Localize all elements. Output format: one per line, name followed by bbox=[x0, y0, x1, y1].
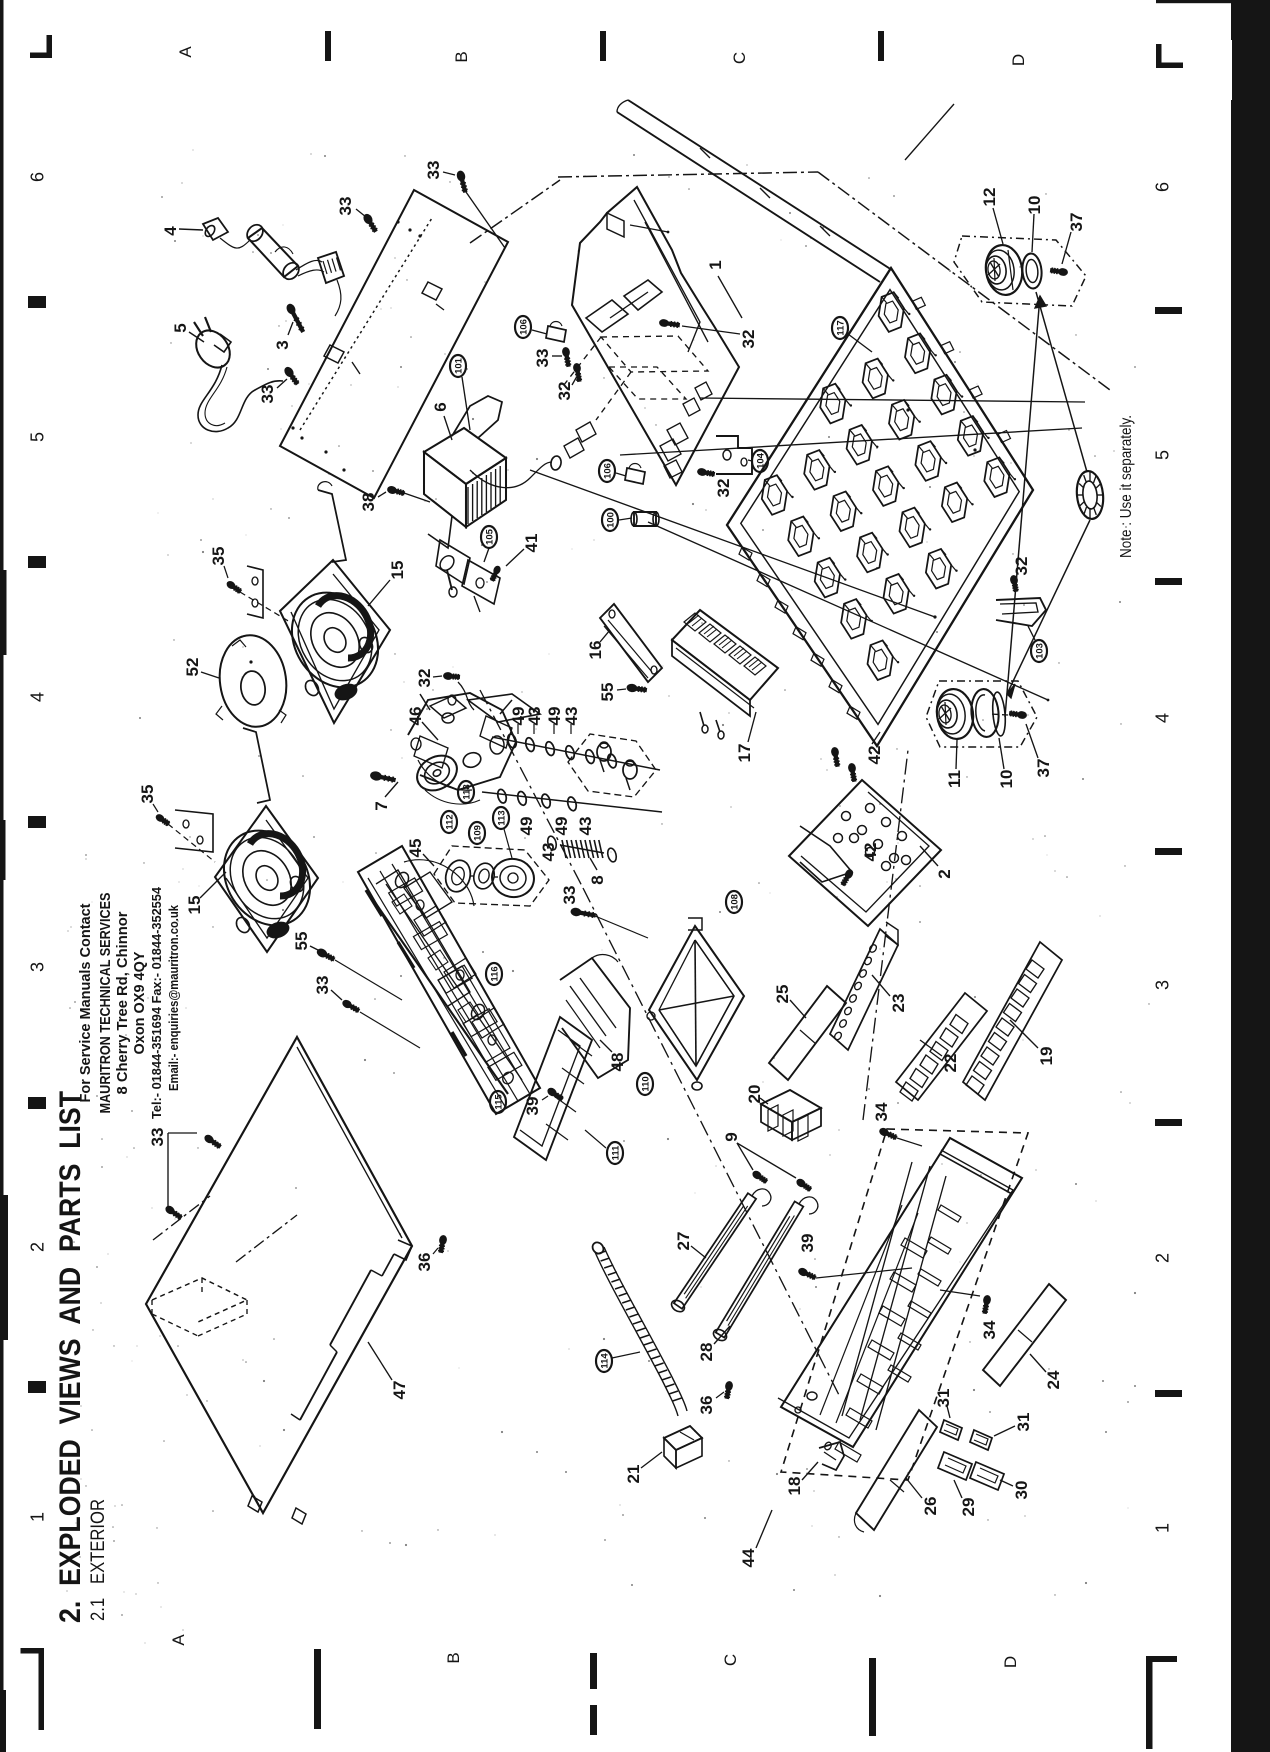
svg-text:33: 33 bbox=[148, 1128, 167, 1147]
svg-text:D: D bbox=[1009, 54, 1028, 66]
svg-text:16: 16 bbox=[586, 641, 605, 660]
svg-text:36: 36 bbox=[697, 1396, 716, 1415]
svg-text:45: 45 bbox=[406, 839, 425, 858]
svg-text:38: 38 bbox=[359, 493, 378, 512]
svg-text:100: 100 bbox=[606, 512, 617, 528]
svg-text:25: 25 bbox=[773, 985, 792, 1004]
svg-text:101: 101 bbox=[454, 357, 465, 374]
svg-text:106: 106 bbox=[603, 463, 614, 479]
svg-text:19: 19 bbox=[1037, 1047, 1056, 1066]
svg-text:55: 55 bbox=[292, 932, 311, 951]
svg-text:8: 8 bbox=[588, 875, 607, 884]
svg-text:33: 33 bbox=[424, 161, 443, 180]
svg-text:31: 31 bbox=[934, 1389, 953, 1408]
svg-text:32: 32 bbox=[714, 479, 733, 498]
svg-text:D: D bbox=[1001, 1656, 1020, 1668]
svg-text:3: 3 bbox=[28, 962, 48, 972]
svg-text:2: 2 bbox=[1153, 1253, 1173, 1263]
svg-text:30: 30 bbox=[1012, 1481, 1031, 1500]
svg-text:112: 112 bbox=[445, 814, 456, 829]
svg-text:117: 117 bbox=[836, 320, 847, 335]
svg-text:118: 118 bbox=[462, 784, 473, 799]
svg-text:36: 36 bbox=[415, 1253, 434, 1272]
svg-text:9: 9 bbox=[722, 1132, 741, 1141]
svg-text:23: 23 bbox=[889, 994, 908, 1013]
svg-text:111: 111 bbox=[611, 1145, 622, 1161]
svg-text:42: 42 bbox=[861, 843, 880, 862]
svg-text:103: 103 bbox=[1035, 643, 1046, 659]
svg-text:6: 6 bbox=[431, 402, 450, 411]
svg-text:4: 4 bbox=[28, 692, 48, 702]
svg-text:3: 3 bbox=[273, 340, 292, 349]
svg-text:32: 32 bbox=[555, 382, 574, 401]
svg-text:35: 35 bbox=[138, 785, 157, 804]
svg-text:6: 6 bbox=[28, 172, 48, 182]
svg-text:37: 37 bbox=[1067, 213, 1086, 232]
svg-text:1: 1 bbox=[706, 260, 725, 269]
svg-text:108: 108 bbox=[730, 894, 741, 910]
svg-text:47: 47 bbox=[390, 1381, 409, 1400]
svg-text:105: 105 bbox=[485, 528, 496, 545]
svg-text:31: 31 bbox=[1014, 1413, 1033, 1432]
svg-text:5: 5 bbox=[28, 432, 48, 442]
svg-text:33: 33 bbox=[560, 886, 579, 905]
svg-text:4: 4 bbox=[161, 226, 180, 236]
svg-text:32: 32 bbox=[1012, 557, 1031, 576]
svg-text:26: 26 bbox=[921, 1497, 940, 1516]
svg-text:43: 43 bbox=[576, 817, 595, 836]
svg-text:4: 4 bbox=[1153, 713, 1173, 723]
svg-text:33: 33 bbox=[313, 976, 332, 995]
svg-text:6: 6 bbox=[1153, 182, 1173, 192]
svg-text:114: 114 bbox=[600, 1353, 611, 1369]
svg-text:52: 52 bbox=[183, 658, 202, 677]
svg-text:1: 1 bbox=[28, 1512, 48, 1522]
svg-text:113: 113 bbox=[497, 810, 508, 825]
svg-text:35: 35 bbox=[209, 547, 228, 566]
svg-text:44: 44 bbox=[739, 1548, 758, 1567]
svg-text:C: C bbox=[721, 1654, 740, 1666]
svg-text:27: 27 bbox=[674, 1232, 693, 1251]
svg-text:109: 109 bbox=[473, 825, 484, 841]
svg-text:49: 49 bbox=[517, 817, 536, 836]
svg-text:33: 33 bbox=[533, 349, 552, 368]
svg-text:49: 49 bbox=[552, 817, 571, 836]
svg-text:48: 48 bbox=[608, 1053, 627, 1072]
svg-text:Note : Use it separately.: Note : Use it separately. bbox=[1118, 415, 1135, 558]
svg-text:28: 28 bbox=[697, 1343, 716, 1362]
svg-text:33: 33 bbox=[336, 197, 355, 216]
svg-text:2: 2 bbox=[28, 1242, 48, 1252]
svg-text:1: 1 bbox=[1153, 1523, 1173, 1533]
svg-text:21: 21 bbox=[624, 1465, 643, 1484]
svg-text:43: 43 bbox=[525, 707, 544, 726]
svg-text:2.1 EXTERIOR: 2.1 EXTERIOR bbox=[88, 1499, 109, 1621]
svg-text:17: 17 bbox=[735, 744, 754, 763]
svg-text:37: 37 bbox=[1034, 759, 1053, 778]
svg-text:10: 10 bbox=[1025, 196, 1044, 215]
svg-text:15: 15 bbox=[185, 896, 204, 915]
svg-text:32: 32 bbox=[739, 330, 758, 349]
svg-text:12: 12 bbox=[980, 188, 999, 207]
svg-text:5: 5 bbox=[171, 323, 190, 332]
svg-text:8 Cherry Tree Rd, Chinnor: 8 Cherry Tree Rd, Chinnor bbox=[114, 911, 131, 1094]
svg-text:For Service Manuals Contact: For Service Manuals Contact bbox=[77, 904, 94, 1103]
svg-text:39: 39 bbox=[523, 1097, 542, 1116]
svg-text:24: 24 bbox=[1044, 1370, 1063, 1389]
svg-text:C: C bbox=[730, 52, 749, 64]
svg-text:7: 7 bbox=[372, 801, 391, 810]
svg-text:5: 5 bbox=[1153, 450, 1173, 460]
svg-text:34: 34 bbox=[980, 1320, 999, 1339]
svg-text:A: A bbox=[169, 1634, 188, 1646]
svg-text:22: 22 bbox=[941, 1054, 960, 1073]
svg-text:Oxon OX9 4QY: Oxon OX9 4QY bbox=[131, 952, 148, 1055]
svg-text:104: 104 bbox=[756, 452, 767, 469]
svg-text:116: 116 bbox=[490, 966, 501, 981]
svg-text:2: 2 bbox=[935, 869, 954, 878]
svg-text:33: 33 bbox=[258, 385, 277, 404]
svg-text:10: 10 bbox=[997, 770, 1016, 789]
svg-text:Tel:- 01844-351694 Fax:- 01844: Tel:- 01844-351694 Fax:- 01844-352554 bbox=[149, 886, 164, 1119]
svg-text:110: 110 bbox=[641, 1076, 652, 1091]
svg-text:18: 18 bbox=[785, 1477, 804, 1496]
svg-text:115: 115 bbox=[494, 1094, 505, 1110]
svg-text:MAURITRON TECHNICAL SERVICES: MAURITRON TECHNICAL SERVICES bbox=[97, 893, 114, 1114]
svg-text:42: 42 bbox=[865, 746, 884, 765]
svg-text:29: 29 bbox=[959, 1498, 978, 1517]
svg-text:39: 39 bbox=[798, 1234, 817, 1253]
svg-text:43: 43 bbox=[562, 707, 581, 726]
svg-text:B: B bbox=[444, 1652, 463, 1663]
svg-text:2. EXPLODED VIEWS AND PART: 2. EXPLODED VIEWS AND PARTS LIST bbox=[54, 1091, 87, 1623]
svg-text:15: 15 bbox=[388, 561, 407, 580]
svg-text:3: 3 bbox=[1153, 980, 1173, 990]
svg-text:B: B bbox=[452, 51, 471, 62]
svg-text:41: 41 bbox=[522, 534, 541, 553]
svg-text:A: A bbox=[176, 46, 195, 58]
svg-text:Email:- enquiries@mauritron.co: Email:- enquiries@mauritron.co.uk bbox=[166, 904, 181, 1091]
svg-text:20: 20 bbox=[745, 1085, 764, 1104]
svg-text:55: 55 bbox=[598, 683, 617, 702]
svg-text:34: 34 bbox=[872, 1102, 891, 1121]
svg-text:32: 32 bbox=[415, 669, 434, 688]
svg-text:11: 11 bbox=[945, 770, 964, 788]
svg-text:106: 106 bbox=[519, 319, 530, 335]
